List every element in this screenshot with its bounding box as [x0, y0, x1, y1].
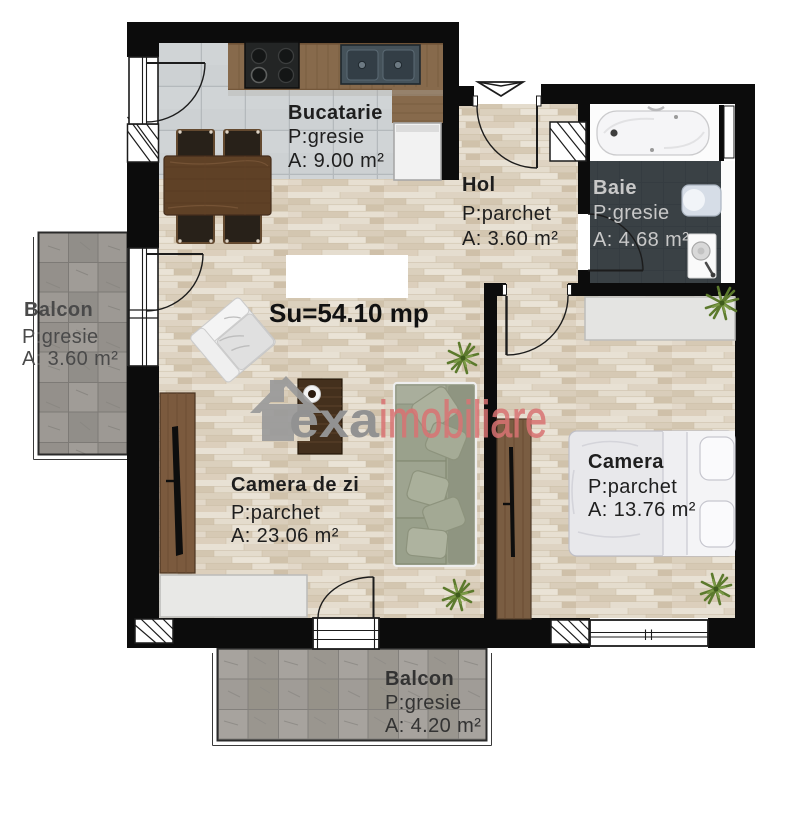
- svg-text:P:gresie: P:gresie: [593, 202, 670, 224]
- svg-text:A: 13.76 m²: A: 13.76 m²: [588, 499, 696, 521]
- svg-text:Hol: Hol: [462, 174, 495, 196]
- svg-text:Camera de zi: Camera de zi: [231, 474, 359, 496]
- svg-text:Balcon: Balcon: [24, 299, 93, 321]
- svg-text:Baie: Baie: [593, 177, 637, 199]
- svg-text:P:parchet: P:parchet: [231, 502, 320, 524]
- svg-text:P:gresie: P:gresie: [288, 126, 365, 148]
- svg-text:exa: exa: [289, 392, 380, 448]
- svg-text:A: 3.60 m²: A: 3.60 m²: [22, 348, 118, 370]
- svg-text:A: 3.60 m²: A: 3.60 m²: [462, 228, 558, 250]
- svg-text:imobiliare: imobiliare: [379, 391, 547, 449]
- svg-text:P:parchet: P:parchet: [462, 203, 551, 225]
- svg-text:P:parchet: P:parchet: [588, 476, 677, 498]
- svg-text:P:gresie: P:gresie: [22, 326, 99, 348]
- svg-text:P:gresie: P:gresie: [385, 692, 462, 714]
- svg-text:Balcon: Balcon: [385, 668, 454, 690]
- svg-text:A: 23.06 m²: A: 23.06 m²: [231, 525, 339, 547]
- svg-text:A: 4.68 m²: A: 4.68 m²: [593, 229, 689, 251]
- svg-text:A: 9.00 m²: A: 9.00 m²: [288, 150, 384, 172]
- svg-text:A: 4.20 m²: A: 4.20 m²: [385, 715, 481, 737]
- svg-text:Bucatarie: Bucatarie: [288, 102, 383, 124]
- svg-text:Su=54.10 mp: Su=54.10 mp: [269, 298, 429, 328]
- svg-text:Camera: Camera: [588, 451, 664, 473]
